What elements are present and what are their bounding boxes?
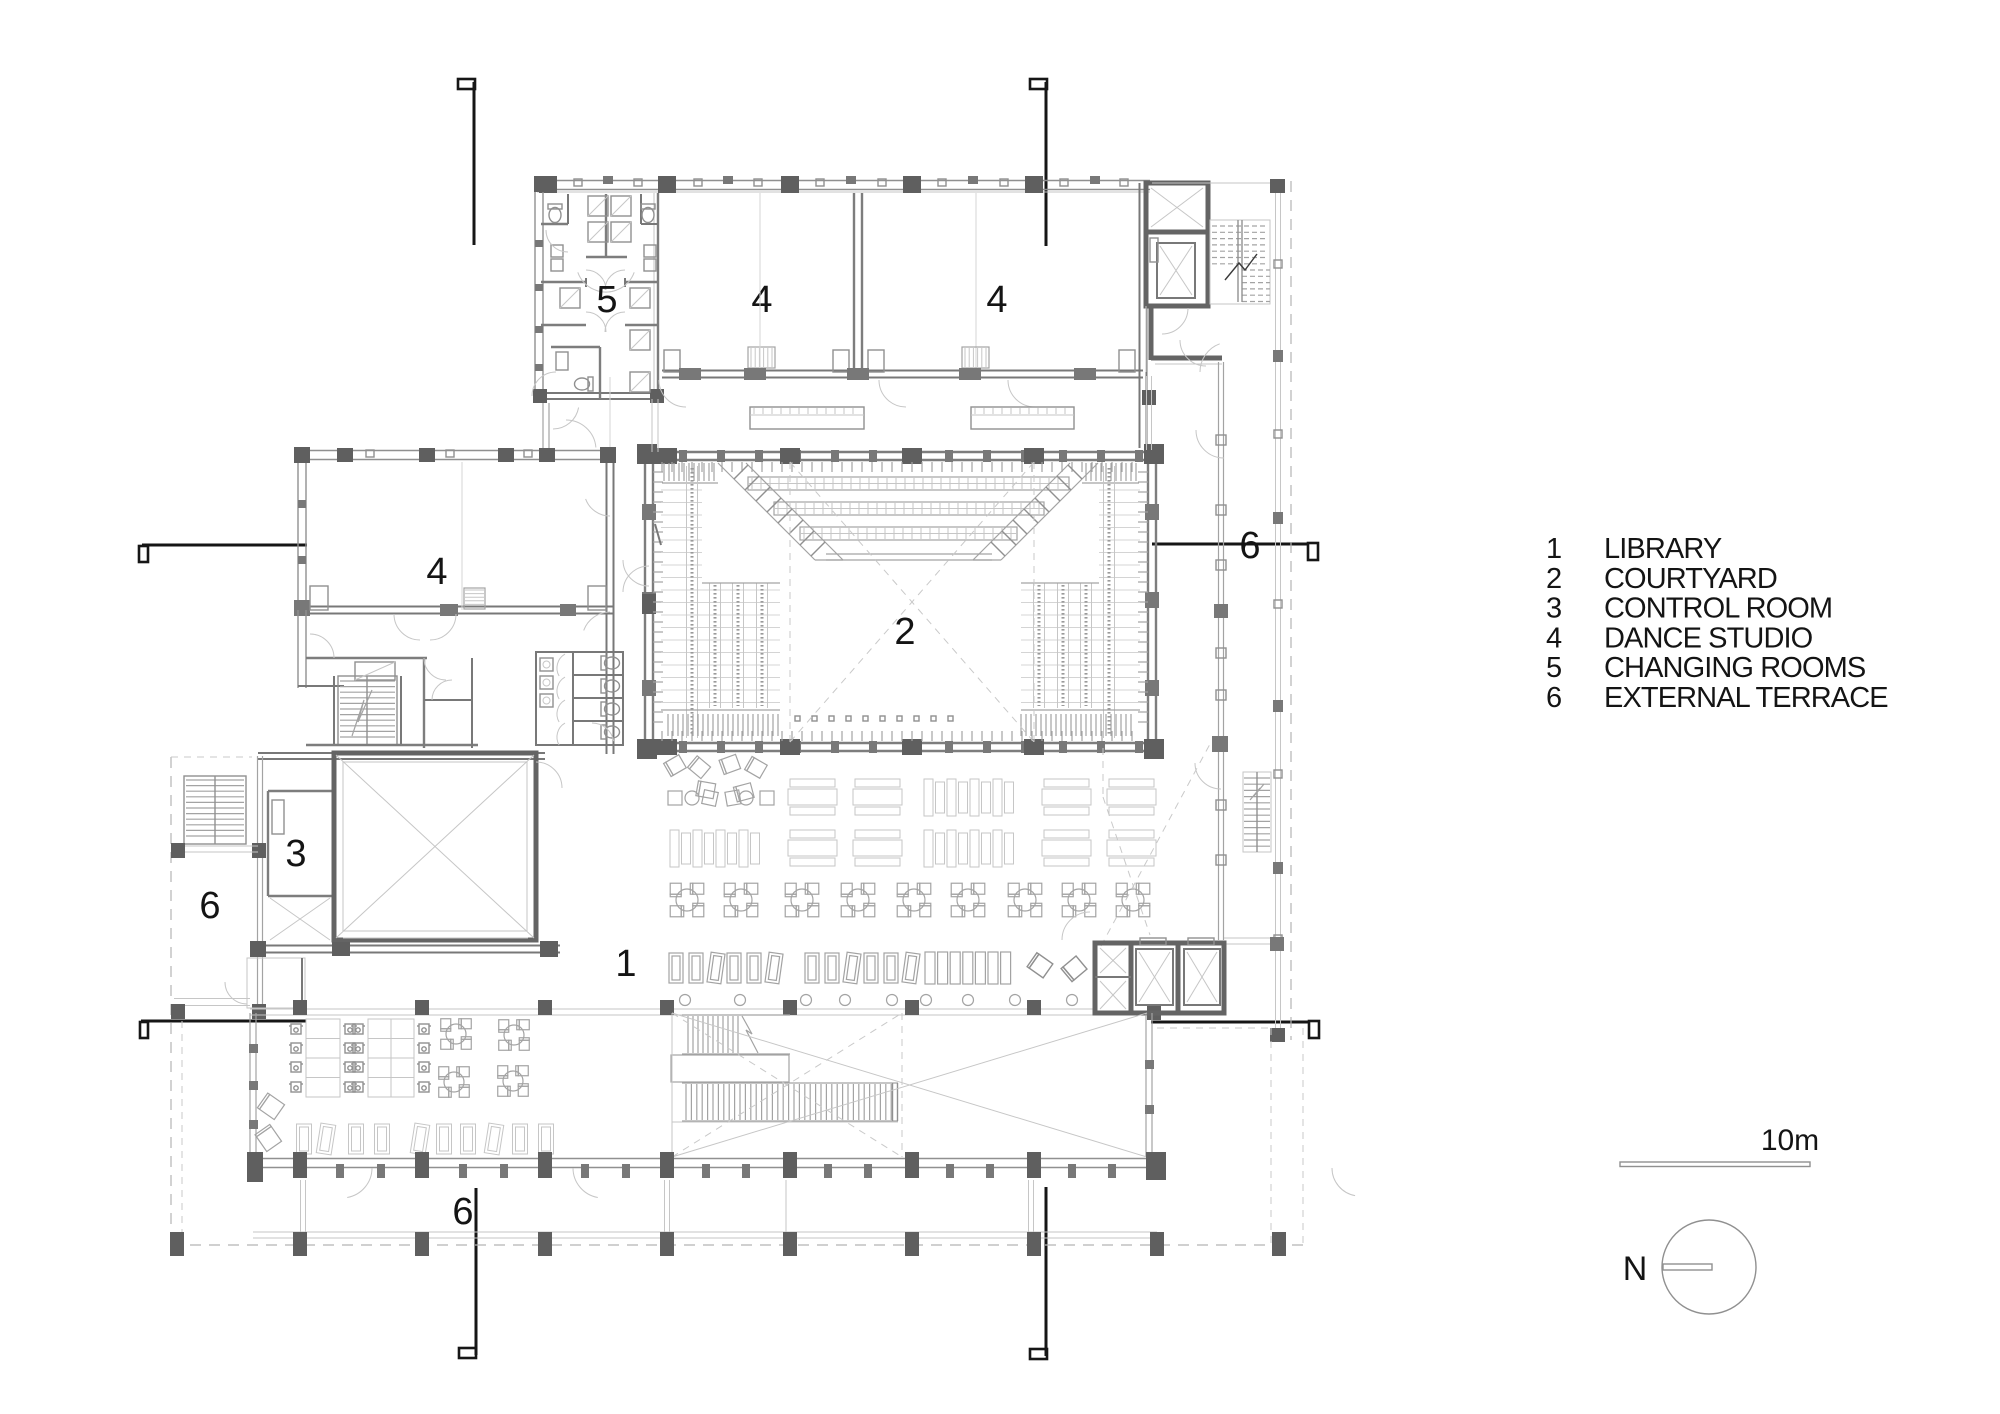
svg-text:3: 3 (1546, 593, 1562, 625)
svg-text:CONTROL ROOM: CONTROL ROOM (1604, 593, 1832, 625)
svg-text:6: 6 (1239, 525, 1260, 567)
svg-text:10m: 10m (1761, 1124, 1819, 1157)
svg-text:2: 2 (894, 611, 915, 653)
svg-text:6: 6 (1546, 682, 1562, 714)
svg-text:CHANGING ROOMS: CHANGING ROOMS (1604, 652, 1866, 684)
svg-text:EXTERNAL TERRACE: EXTERNAL TERRACE (1604, 682, 1888, 714)
svg-text:N: N (1623, 1250, 1648, 1288)
svg-text:5: 5 (596, 279, 617, 321)
svg-text:LIBRARY: LIBRARY (1604, 533, 1722, 565)
svg-text:6: 6 (199, 885, 220, 927)
svg-text:DANCE STUDIO: DANCE STUDIO (1604, 622, 1813, 654)
svg-text:1: 1 (1546, 533, 1562, 565)
svg-text:2: 2 (1546, 563, 1562, 595)
svg-text:1: 1 (615, 943, 636, 985)
svg-text:4: 4 (426, 551, 447, 593)
svg-text:4: 4 (751, 279, 772, 321)
svg-text:4: 4 (986, 279, 1007, 321)
svg-text:COURTYARD: COURTYARD (1604, 563, 1777, 595)
svg-text:4: 4 (1546, 622, 1562, 654)
svg-text:3: 3 (285, 833, 306, 875)
svg-text:6: 6 (452, 1191, 473, 1233)
svg-text:5: 5 (1546, 652, 1562, 684)
